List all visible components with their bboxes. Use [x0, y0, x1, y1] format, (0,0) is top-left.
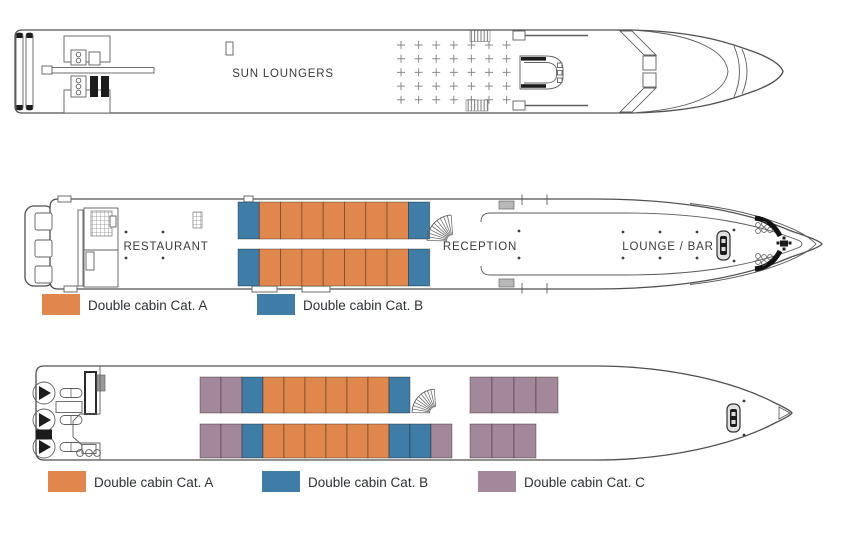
cabin-cat-a — [323, 202, 344, 239]
cabin-cat-c — [492, 424, 514, 458]
cat-c-swatch — [478, 471, 516, 492]
cabin-cat-b — [238, 202, 259, 239]
crane-base — [42, 66, 52, 74]
cabin-cat-a — [326, 377, 347, 413]
lounge-bar-label: LOUNGE / BAR — [622, 241, 713, 253]
cabin-cat-b — [410, 424, 431, 458]
cabin-cat-a — [302, 202, 323, 239]
stern-windows — [35, 213, 52, 283]
cat-c-label: Double cabin Cat. C — [524, 475, 645, 490]
cabin-cat-c — [200, 424, 221, 458]
cabin-cat-c — [221, 377, 242, 413]
cabin-cat-a — [302, 249, 323, 286]
legend-item-cat-c: Double cabin Cat. C — [478, 471, 645, 492]
cabin-cat-a — [368, 424, 389, 458]
cabin-cat-a — [284, 424, 305, 458]
legend-item-cat-a: Double cabin Cat. A — [48, 471, 213, 492]
cabin-cat-a — [259, 202, 280, 239]
galley-block — [78, 208, 118, 287]
sun-deck-label: SUN LOUNGERS — [232, 68, 334, 80]
cabin-cat-a — [305, 377, 326, 413]
cabin-cat-c — [470, 424, 492, 458]
reception-label: RECEPTION — [443, 241, 517, 253]
legend-item-cat-b: Double cabin Cat. B — [257, 294, 423, 315]
cabin-cat-b — [408, 249, 429, 286]
vent-hatch-bottom — [466, 100, 488, 111]
cabin-cat-a — [284, 377, 305, 413]
cabin-cat-b — [389, 377, 410, 413]
cabin-cat-b — [242, 377, 263, 413]
cabin-cat-a — [387, 249, 408, 286]
legend-item-cat-a: Double cabin Cat. A — [42, 294, 207, 315]
restaurant-label: RESTAURANT — [123, 241, 208, 253]
generator-box — [56, 402, 82, 413]
cabin-cat-a — [345, 202, 366, 239]
cabin-cat-b — [238, 249, 259, 286]
cabin-cat-c — [200, 377, 221, 413]
cabin-cat-c — [514, 377, 536, 413]
cabin-cat-c — [221, 424, 242, 458]
cabin-cat-c — [431, 424, 452, 458]
cat-a-label: Double cabin Cat. A — [88, 298, 207, 313]
cabin-cat-a — [366, 249, 387, 286]
cabin-cat-b — [242, 424, 263, 458]
cabin-cat-a — [326, 424, 347, 458]
main-deck: RESTAURANT RECEPTION LOUNGE / BAR — [25, 195, 822, 294]
cabin-cat-c — [514, 424, 536, 458]
cat-b-label: Double cabin Cat. B — [303, 298, 423, 313]
deck-hatch — [226, 42, 233, 55]
equipment-box — [36, 430, 52, 440]
cabin-cat-a — [259, 249, 280, 286]
cabin-cat-a — [305, 424, 326, 458]
cat-b-label: Double cabin Cat. B — [308, 475, 428, 490]
cabin-cat-a — [323, 249, 344, 286]
cabin-cat-a — [347, 377, 368, 413]
cabin-cat-a — [263, 424, 284, 458]
cabin-cat-a — [347, 424, 368, 458]
lower-deck-legend: Double cabin Cat. A Double cabin Cat. B … — [48, 471, 645, 492]
wheelhouse — [520, 56, 563, 89]
cabin-cat-a — [345, 249, 366, 286]
cat-b-swatch — [257, 294, 295, 315]
cabin-cat-a — [366, 202, 387, 239]
cabin-cat-a — [387, 202, 408, 239]
sun-deck: SUN LOUNGERS — [15, 30, 783, 113]
cabin-cat-a — [281, 249, 302, 286]
crane-arm — [52, 68, 154, 74]
cabin-cat-c — [492, 377, 514, 413]
cabin-cat-b — [408, 202, 429, 239]
panel — [97, 375, 105, 391]
cat-a-label: Double cabin Cat. A — [94, 475, 213, 490]
cat-b-swatch — [262, 471, 300, 492]
cabin-cat-a — [263, 377, 284, 413]
cabin-cat-a — [368, 377, 389, 413]
deck-plan: SUN LOUNGERS — [0, 0, 857, 556]
legend-item-cat-b: Double cabin Cat. B — [262, 471, 428, 492]
tank — [85, 372, 96, 414]
cabin-cat-b — [389, 424, 410, 458]
main-deck-legend: Double cabin Cat. A Double cabin Cat. B — [42, 294, 423, 315]
cabin-cat-a — [281, 202, 302, 239]
lower-deck — [33, 366, 792, 460]
cabin-cat-c — [470, 377, 492, 413]
cat-a-swatch — [42, 294, 80, 315]
bar-counter — [717, 231, 730, 260]
cat-a-swatch — [48, 471, 86, 492]
vent-hatch-top — [470, 31, 490, 42]
cabin-cat-c — [536, 377, 558, 413]
